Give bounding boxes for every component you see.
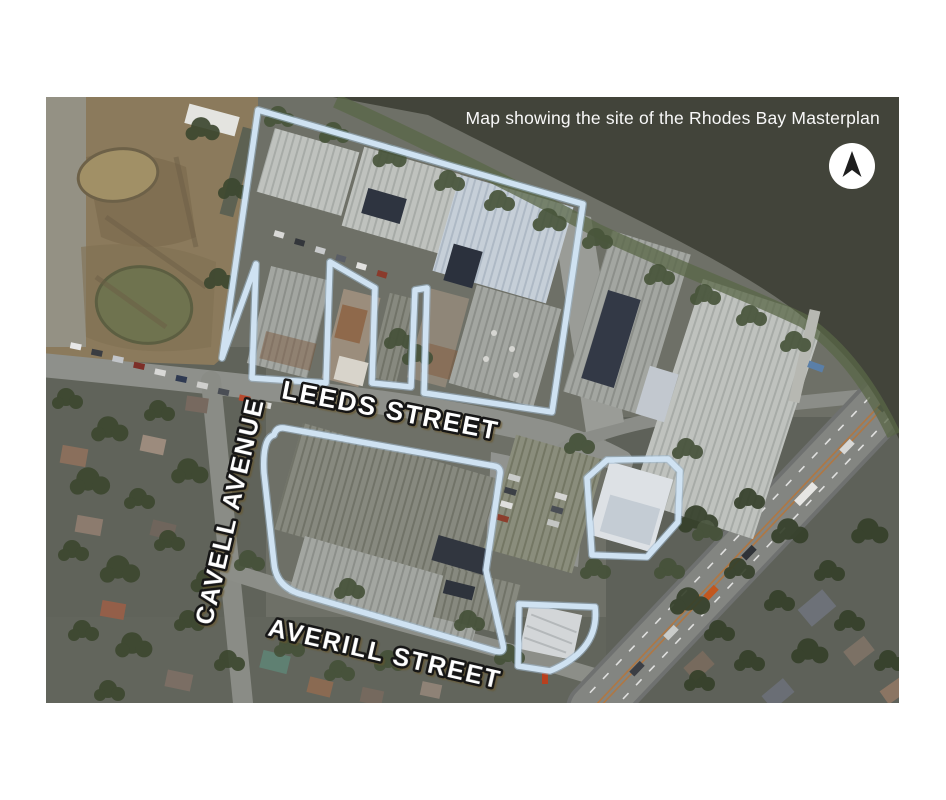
aerial-basemap: LEEDS STREET CAVELL AVENUE AVERILL STREE… — [46, 97, 899, 703]
map-caption: Map showing the site of the Rhodes Bay M… — [466, 108, 880, 129]
aerial-map: LEEDS STREET CAVELL AVENUE AVERILL STREE… — [46, 97, 899, 703]
north-arrow-icon — [829, 143, 875, 189]
north-arrow-glyph — [829, 143, 875, 189]
